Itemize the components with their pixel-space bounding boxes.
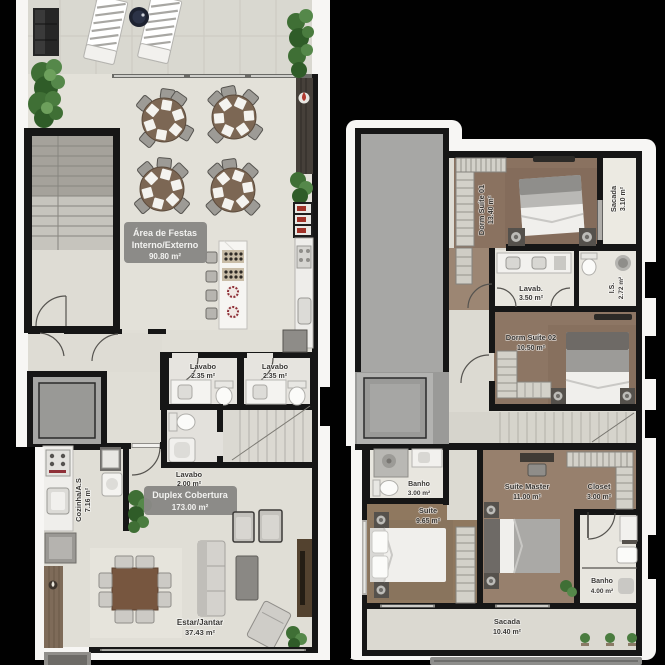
svg-text:Banho: Banho (408, 481, 430, 488)
svg-text:I.S.: I.S. (609, 283, 616, 294)
svg-text:Dorm Suíte 02: Dorm Suíte 02 (506, 333, 556, 342)
svg-text:Dorm Suíte 01: Dorm Suíte 01 (477, 185, 486, 235)
svg-text:Sacada: Sacada (609, 185, 618, 212)
svg-text:Estar/Jantar: Estar/Jantar (177, 618, 223, 627)
svg-text:4.00 m²: 4.00 m² (591, 588, 614, 595)
svg-text:2.72 m²: 2.72 m² (618, 276, 625, 299)
svg-text:3.00 m²: 3.00 m² (408, 490, 431, 497)
svg-text:Banho: Banho (591, 578, 613, 585)
svg-text:2.35 m²: 2.35 m² (263, 373, 288, 380)
svg-text:11.00 m²: 11.00 m² (513, 494, 541, 501)
svg-text:Sacada: Sacada (494, 617, 521, 626)
svg-text:Suíte: Suíte (419, 506, 437, 515)
svg-text:Suíte Master: Suíte Master (505, 482, 550, 491)
svg-text:Cozinha/A.S: Cozinha/A.S (74, 478, 83, 522)
svg-text:Lavab.: Lavab. (519, 284, 543, 293)
svg-text:3.50 m²: 3.50 m² (519, 295, 544, 302)
svg-text:90.80 m²: 90.80 m² (149, 252, 181, 261)
svg-text:Lavabo: Lavabo (190, 362, 217, 371)
svg-text:Interno/Externo: Interno/Externo (132, 240, 199, 250)
svg-text:2.35 m²: 2.35 m² (191, 373, 216, 380)
svg-text:3.00 m²: 3.00 m² (587, 494, 612, 501)
svg-text:Lavabo: Lavabo (262, 362, 289, 371)
svg-text:Área de Festas: Área de Festas (133, 228, 197, 238)
svg-text:3.10 m²: 3.10 m² (620, 186, 627, 211)
svg-text:13.40 m²: 13.40 m² (488, 195, 495, 224)
svg-text:9.65 m²: 9.65 m² (416, 518, 441, 525)
svg-text:37.43 m²: 37.43 m² (185, 628, 216, 637)
svg-text:Duplex Cobertura: Duplex Cobertura (152, 490, 229, 500)
svg-text:173.00 m²: 173.00 m² (172, 503, 209, 512)
svg-text:10.40 m²: 10.40 m² (493, 629, 522, 636)
svg-text:Lavabo: Lavabo (176, 470, 203, 479)
svg-text:10.50 m²: 10.50 m² (517, 345, 546, 352)
svg-text:7.16 m²: 7.16 m² (85, 487, 92, 512)
svg-text:Closet: Closet (588, 482, 611, 491)
